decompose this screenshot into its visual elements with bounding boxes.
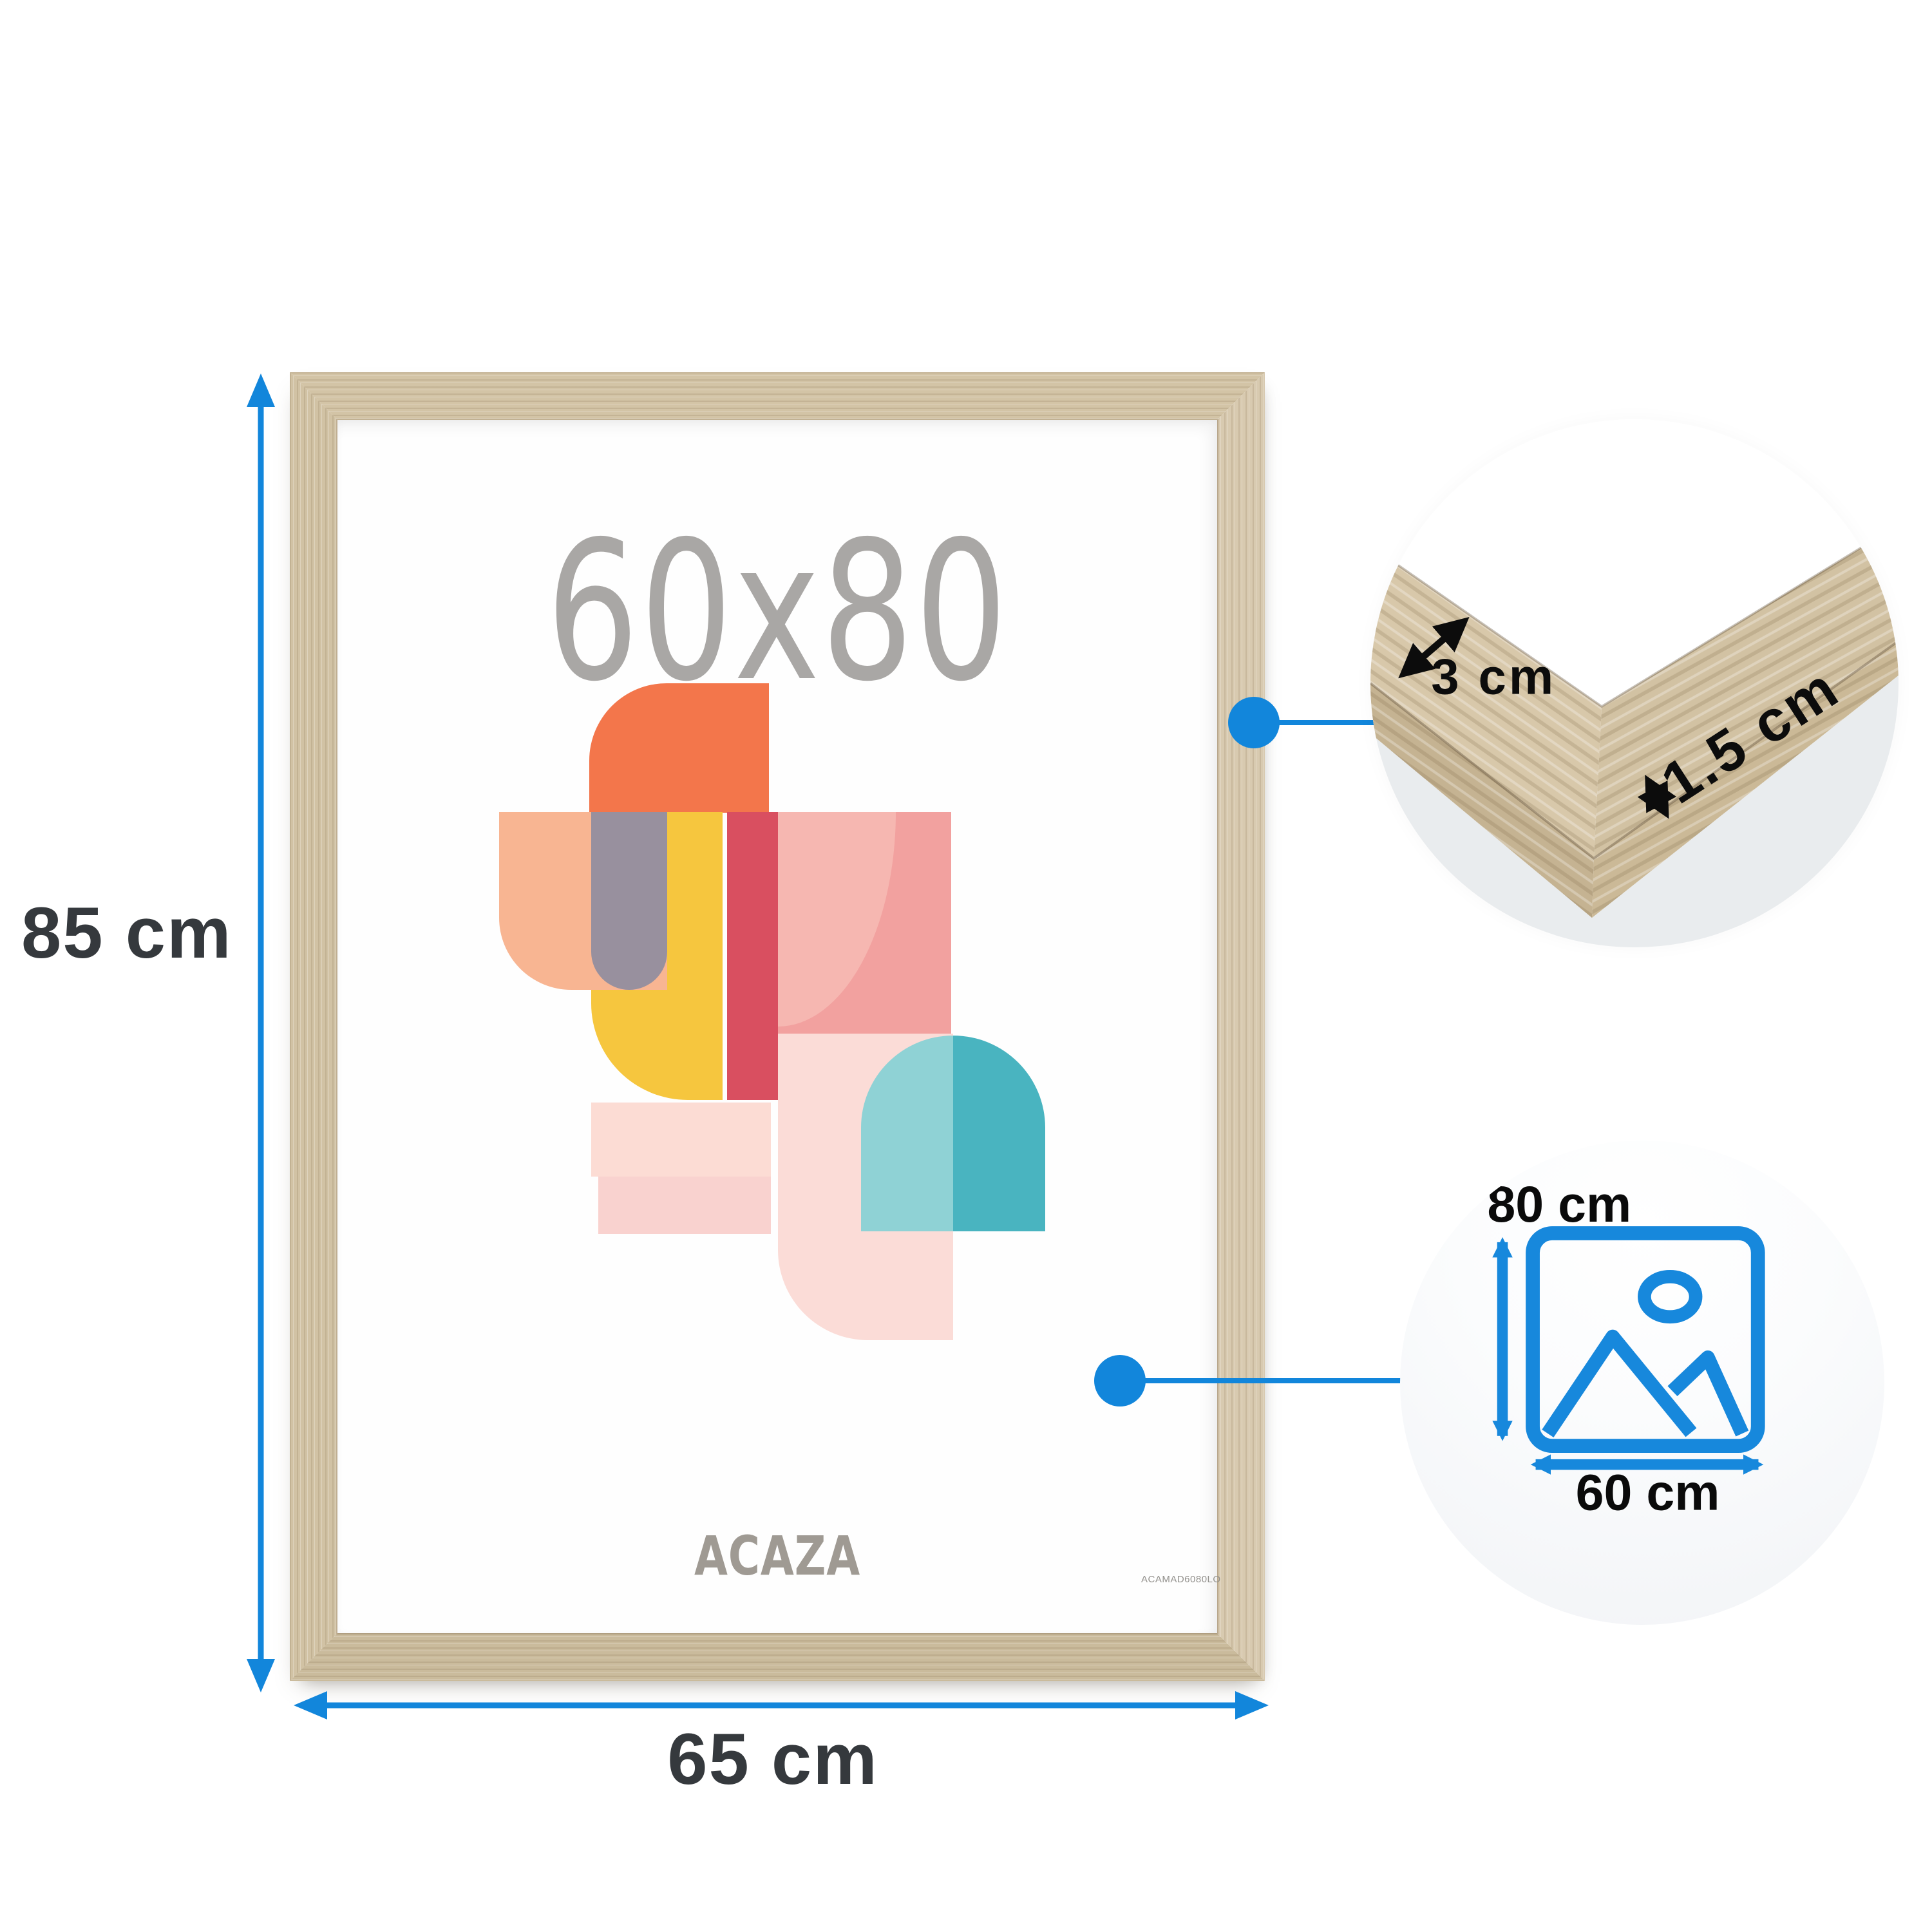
frame-width-label: 65 cm bbox=[667, 1723, 878, 1795]
art-orange-arch bbox=[589, 683, 769, 813]
brand-text: ACAZA bbox=[694, 1529, 860, 1583]
arrow-down-icon bbox=[247, 1659, 275, 1692]
art-teal-arch-light-half bbox=[861, 1036, 953, 1231]
art-red-bar bbox=[727, 812, 778, 1100]
picture-size-callout: 80 cm 60 cm bbox=[1400, 1141, 1884, 1625]
picture-width-label: 60 cm bbox=[1576, 1464, 1720, 1520]
product-dimension-diagram: 60x80 ACAZA ACAMAD6080LO bbox=[0, 0, 1932, 1932]
width-arrow bbox=[294, 1691, 1269, 1719]
arrow-up-icon bbox=[247, 374, 275, 407]
image-icon bbox=[1533, 1233, 1758, 1446]
corner-detail-callout: 3 cm 1.5 cm bbox=[1370, 419, 1899, 947]
art-gray-arch bbox=[591, 812, 667, 990]
frame-corner-closeup: 3 cm 1.5 cm bbox=[1370, 419, 1899, 947]
product-code-text: ACAMAD6080LO bbox=[1141, 1574, 1221, 1585]
art-teal-arch bbox=[861, 1036, 1045, 1231]
arrow-right-icon bbox=[1235, 1691, 1269, 1719]
poster-insert: 60x80 ACAZA ACAMAD6080LO bbox=[337, 420, 1217, 1633]
picture-frame-photo: 60x80 ACAZA ACAMAD6080LO bbox=[290, 372, 1265, 1681]
arrow-left-icon bbox=[294, 1691, 327, 1719]
frame-left-rail bbox=[290, 372, 337, 1681]
art-teal-arch-dark-half bbox=[953, 1036, 1045, 1231]
frame-bottom-rail bbox=[290, 1633, 1265, 1681]
picture-height-label: 80 cm bbox=[1487, 1176, 1631, 1233]
poster-size-text: 60x80 bbox=[546, 516, 1009, 708]
art-light-pink-band-2 bbox=[598, 1177, 771, 1234]
frame-right-rail bbox=[1217, 372, 1265, 1681]
picture-size-graphic: 80 cm 60 cm bbox=[1400, 1141, 1884, 1625]
art-light-pink-band-1 bbox=[591, 1103, 771, 1177]
frame-height-label: 85 cm bbox=[21, 897, 232, 969]
profile-face-label: 3 cm bbox=[1431, 648, 1556, 705]
frame-top-rail bbox=[290, 372, 1265, 420]
height-arrow bbox=[247, 374, 275, 1692]
